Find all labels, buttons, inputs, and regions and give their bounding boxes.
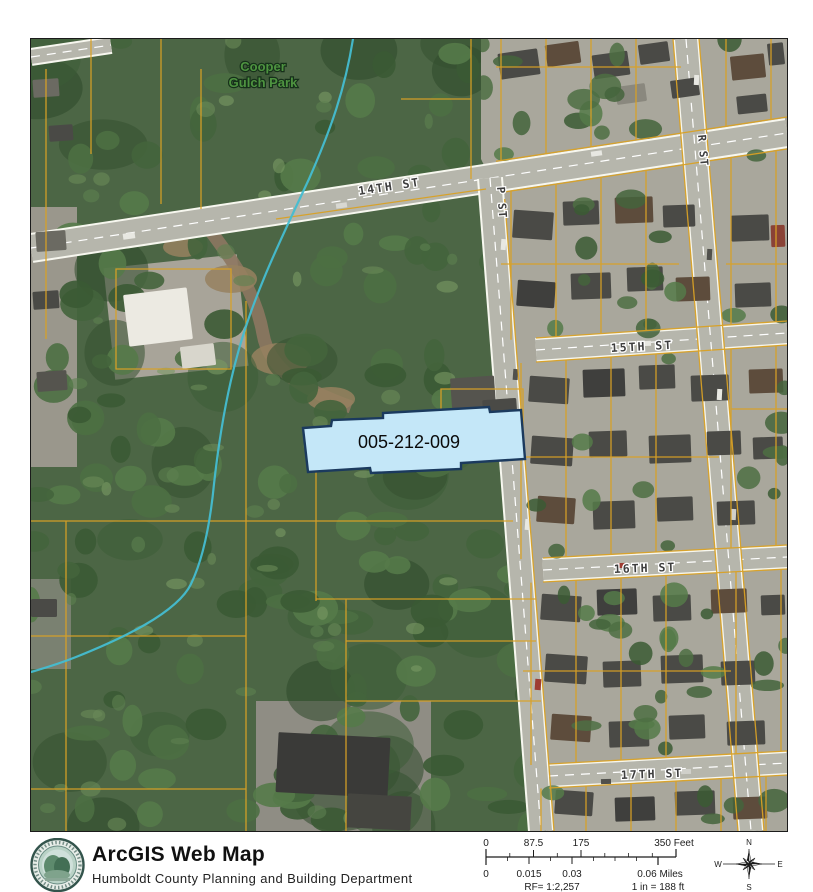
page-subtitle: Humboldt County Planning and Building De… bbox=[92, 871, 413, 886]
street-label-17th: 17TH ST bbox=[621, 766, 684, 782]
compass-e: E bbox=[777, 860, 782, 869]
selected-parcel-apn: 005-212-009 bbox=[358, 432, 460, 452]
scalebar-feet-0: 0 bbox=[483, 838, 489, 849]
scalebar-miles-max: 0.06 Miles bbox=[637, 869, 683, 880]
scalebar-miles-mid1: 0.015 bbox=[516, 869, 541, 880]
page-title: ArcGIS Web Map bbox=[92, 843, 265, 867]
scalebar-miles-0: 0 bbox=[483, 869, 489, 880]
park-label-line1: Cooper bbox=[240, 59, 286, 74]
scalebar-inches: 1 in = 188 ft bbox=[632, 882, 685, 892]
scalebar-feet-mid1: 87.5 bbox=[524, 838, 544, 849]
scale-bar: 0 87.5 175 350 Feet 0 0.015 0.03 0.06 Mi… bbox=[478, 835, 700, 892]
park-label-line2: Gulch Park bbox=[229, 75, 298, 90]
compass-w: W bbox=[714, 860, 722, 869]
map-viewport[interactable]: Cooper Gulch Park 14TH ST P ST R ST 15TH… bbox=[30, 38, 788, 832]
scalebar-rf: RF= 1:2,257 bbox=[524, 882, 580, 892]
scalebar-feet-max: 350 Feet bbox=[654, 838, 694, 849]
map-export-page: Cooper Gulch Park 14TH ST P ST R ST 15TH… bbox=[0, 0, 813, 892]
scalebar-miles-mid2: 0.03 bbox=[562, 869, 582, 880]
compass-rose: N S W E bbox=[706, 835, 792, 892]
street-label-16th: 16TH ST bbox=[614, 560, 677, 576]
compass-n: N bbox=[746, 838, 752, 847]
street-label-p: P ST bbox=[494, 186, 509, 219]
county-seal-logo bbox=[29, 838, 86, 892]
compass-s: S bbox=[746, 883, 751, 892]
scalebar-feet-mid2: 175 bbox=[573, 838, 590, 849]
